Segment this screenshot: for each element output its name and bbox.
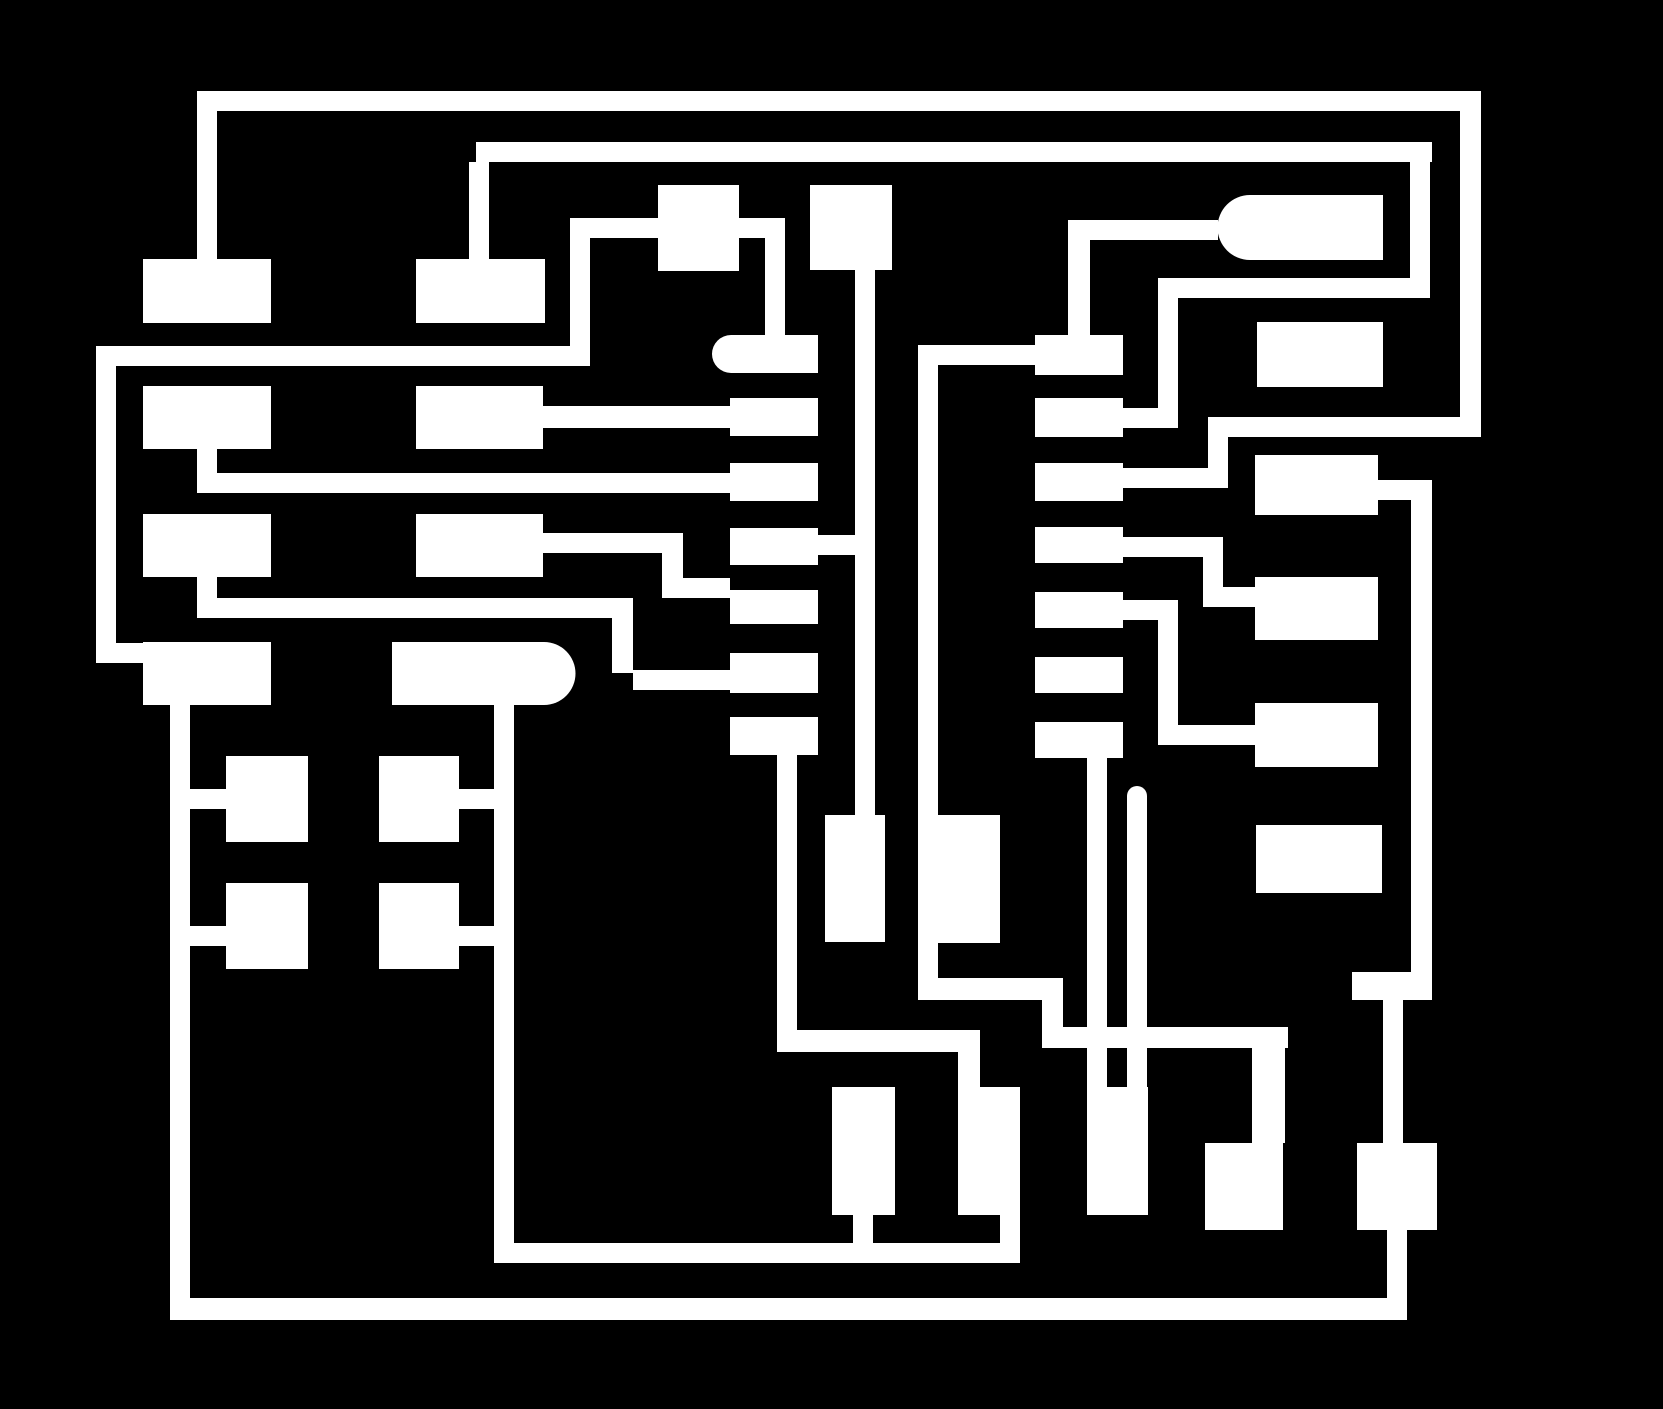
pad-mid-col-row3 <box>416 514 543 577</box>
trace-h2-right-vert <box>570 218 590 366</box>
pad-bottom-row-d <box>1205 1143 1283 1230</box>
trace-bottom-inner <box>494 1243 1020 1263</box>
trace-right-edge-vert <box>1460 91 1481 437</box>
pad-tall-mid-b <box>938 815 1000 943</box>
trace-grid-r1-left-stub <box>190 789 226 809</box>
trace-icR5-to-rc4 <box>1158 725 1255 745</box>
pad-ic-right-row7 <box>1035 722 1123 758</box>
trace-icL7-horiz <box>777 1030 980 1052</box>
trace-drop-to-padD <box>1252 1027 1285 1143</box>
pad-ic-right-row6 <box>1035 657 1123 693</box>
pad-mid-col-row1 <box>416 259 545 323</box>
pad-bottom-row-e <box>1357 1143 1437 1230</box>
trace-second-return-horiz <box>1158 278 1430 298</box>
trace-v3-bottom-jog <box>1352 972 1432 1000</box>
trace-l3-to-icL6 <box>633 670 730 690</box>
pad-right-col-row2 <box>1255 455 1378 515</box>
pad-top-square-b <box>810 185 892 270</box>
pad-bottom-row-a <box>832 1087 895 1215</box>
pad-left-col-row2 <box>143 386 271 449</box>
trace-v1-center <box>855 270 875 815</box>
pad-grid-row1-left <box>226 756 308 842</box>
pad-ic-right-row1 <box>1035 335 1123 375</box>
pad-bullet-top-right <box>1218 195 1384 260</box>
trace-top-rail-left-drop <box>197 91 217 259</box>
pad-left-col-row3 <box>143 514 271 577</box>
trace-rc2-stub <box>1378 480 1411 500</box>
trace-top-rail <box>199 91 1481 111</box>
trace-bottom-border <box>170 1298 1407 1320</box>
trace-l2-stub <box>197 449 217 473</box>
pad-ic-left-row4 <box>730 528 818 565</box>
trace-icR7-spur <box>1087 758 1107 1087</box>
pad-ic-left-row1-rounded <box>712 335 818 373</box>
trace-v2-bottom-horiz <box>918 978 1063 1000</box>
trace-icL7-drop <box>777 755 797 1052</box>
pad-right-col-row4 <box>1255 703 1378 767</box>
trace-padB-bottom-stub <box>1000 1215 1020 1243</box>
pad-grid-row2-left <box>226 883 308 969</box>
trace-second-rail-rvert <box>1410 162 1430 298</box>
trace-l2-to-icL3 <box>197 473 730 493</box>
trace-right-tall-rail <box>494 705 514 1263</box>
trace-v2-bottom-horiz2 <box>1042 1027 1288 1048</box>
pcb-copper-layer <box>0 0 1663 1409</box>
pad-bottom-row-b <box>958 1087 1020 1215</box>
pad-ic-left-row6 <box>730 653 818 693</box>
trace-row3-jog-down <box>662 533 683 598</box>
trace-l3-stub <box>197 577 217 598</box>
trace-icL7-to-padB <box>958 1052 980 1087</box>
trace-l3-jog-down <box>612 618 633 673</box>
trace-grid-r1-right-stub <box>459 789 494 809</box>
pcb-layout <box>0 0 1663 1409</box>
trace-icR4-to-rc3 <box>1203 587 1255 607</box>
pad-right-col-row5 <box>1256 825 1382 893</box>
trace-l3-horiz <box>197 598 633 618</box>
trace-round-cap-spur <box>1127 786 1147 1087</box>
trace-second-rail <box>476 142 1432 162</box>
trace-left-tall-rail <box>170 705 190 1320</box>
pad-tall-mid-a <box>825 815 885 942</box>
trace-row2-to-icL2 <box>543 406 730 428</box>
pad-right-col-row3 <box>1255 577 1378 640</box>
pad-grid-row1-right <box>379 756 459 842</box>
trace-icR3-connector <box>1123 468 1228 488</box>
trace-v2-center <box>918 345 938 1000</box>
pad-mid-col-row2 <box>416 386 543 449</box>
trace-v3-right-rail <box>1411 480 1432 1000</box>
trace-pad-a-drop <box>765 238 785 335</box>
trace-v3-to-padE <box>1383 1000 1403 1143</box>
pad-ic-right-row3 <box>1035 463 1123 501</box>
pad-top-square-a <box>658 185 739 271</box>
trace-h2-horiz <box>96 346 590 366</box>
trace-grid-r2-right-stub <box>459 926 494 946</box>
trace-icR5-jog <box>1158 600 1178 745</box>
trace-padE-bottom-stub <box>1387 1230 1407 1320</box>
trace-icR2-connector <box>1123 408 1178 428</box>
pad-left-col-row1 <box>143 259 271 323</box>
trace-icR4-horiz <box>1123 537 1203 557</box>
trace-v2-to-icR1 <box>938 345 1035 365</box>
trace-h2-to-pad-l4 <box>116 643 143 663</box>
pad-ic-left-row2 <box>730 398 818 436</box>
trace-row3-to-icL5 <box>683 578 730 598</box>
pad-ic-right-row4 <box>1035 527 1123 563</box>
pad-grid-row2-right <box>379 883 459 969</box>
trace-right-return-horiz <box>1208 417 1481 437</box>
pad-right-col-row1 <box>1257 322 1383 387</box>
pad-stadium-row4 <box>392 642 576 705</box>
pad-ic-left-row7 <box>730 717 818 755</box>
pad-ic-right-row5 <box>1035 592 1123 628</box>
trace-second-rail-drop <box>469 162 489 259</box>
pad-ic-right-row2 <box>1035 398 1123 437</box>
pad-ic-left-row5 <box>730 590 818 624</box>
pad-ic-left-row3 <box>730 463 818 501</box>
trace-bullet-feed <box>1068 220 1218 240</box>
trace-icL4-to-v1 <box>818 535 855 555</box>
pad-left-col-row4 <box>143 642 271 705</box>
trace-h2-left-vert <box>96 346 116 663</box>
trace-padA-bottom-stub <box>853 1215 873 1243</box>
pad-bottom-row-c <box>1087 1087 1148 1215</box>
trace-grid-r2-left-stub <box>190 926 226 946</box>
